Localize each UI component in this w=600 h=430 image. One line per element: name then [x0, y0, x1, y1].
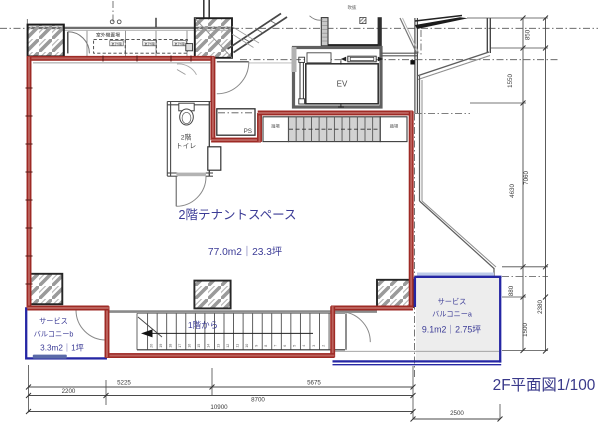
svg-text:PS: PS	[244, 128, 252, 135]
svg-text:7060: 7060	[523, 171, 530, 185]
svg-text:2500: 2500	[450, 410, 464, 417]
svg-text:9: 9	[254, 345, 258, 347]
svg-text:10900: 10900	[210, 404, 228, 411]
svg-text:バルコニーb: バルコニーb	[34, 330, 74, 339]
svg-text:5225: 5225	[117, 380, 131, 387]
svg-text:11: 11	[235, 344, 239, 348]
svg-text:2: 2	[321, 345, 325, 347]
svg-text:14: 14	[207, 344, 211, 348]
svg-text:2F平面図1/100: 2F平面図1/100	[493, 377, 596, 394]
svg-text:2階: 2階	[181, 133, 192, 142]
svg-text:1550: 1550	[507, 74, 514, 88]
svg-text:1500: 1500	[522, 323, 529, 337]
svg-text:2200: 2200	[62, 388, 76, 395]
svg-text:サービス: サービス	[438, 297, 467, 306]
svg-text:9.1m2｜2.75坪: 9.1m2｜2.75坪	[422, 325, 481, 335]
svg-text:サービス: サービス	[39, 317, 68, 326]
svg-text:室外機: 室外機	[111, 41, 122, 46]
svg-text:室外機: 室外機	[144, 41, 155, 46]
svg-text:20: 20	[149, 344, 153, 348]
svg-text:踊場: 踊場	[390, 123, 399, 130]
svg-text:トイレ: トイレ	[176, 143, 197, 150]
svg-text:バルコニーa: バルコニーa	[432, 310, 472, 319]
svg-text:4630: 4630	[509, 184, 516, 198]
svg-text:室外機: 室外機	[174, 41, 185, 46]
svg-text:15: 15	[197, 344, 201, 348]
svg-text:2380: 2380	[537, 300, 544, 314]
svg-text:16: 16	[188, 344, 192, 348]
svg-text:5675: 5675	[307, 380, 321, 387]
svg-text:880: 880	[508, 285, 515, 296]
svg-text:3.3m2｜1坪: 3.3m2｜1坪	[40, 343, 84, 353]
svg-text:8700: 8700	[251, 397, 265, 404]
svg-text:77.0m2｜23.3坪: 77.0m2｜23.3坪	[208, 245, 282, 258]
svg-text:EV: EV	[337, 80, 348, 89]
svg-text:4: 4	[302, 345, 306, 347]
svg-text:吹抜: 吹抜	[348, 4, 357, 11]
svg-text:6: 6	[283, 345, 287, 347]
svg-text:18: 18	[169, 344, 173, 348]
svg-text:17: 17	[178, 344, 182, 348]
svg-text:8: 8	[264, 345, 268, 347]
svg-text:12: 12	[226, 344, 230, 348]
svg-text:室外機置場: 室外機置場	[96, 31, 120, 38]
svg-text:踊場: 踊場	[271, 123, 280, 130]
svg-text:13: 13	[216, 344, 220, 348]
svg-text:5: 5	[293, 345, 297, 347]
svg-text:19: 19	[159, 344, 163, 348]
svg-text:850: 850	[525, 29, 532, 40]
svg-text:10: 10	[245, 344, 249, 348]
svg-text:1階から: 1階から	[188, 320, 218, 330]
svg-text:7: 7	[274, 345, 278, 347]
svg-text:2階テナントスペース: 2階テナントスペース	[179, 207, 297, 222]
svg-text:3: 3	[312, 345, 316, 347]
